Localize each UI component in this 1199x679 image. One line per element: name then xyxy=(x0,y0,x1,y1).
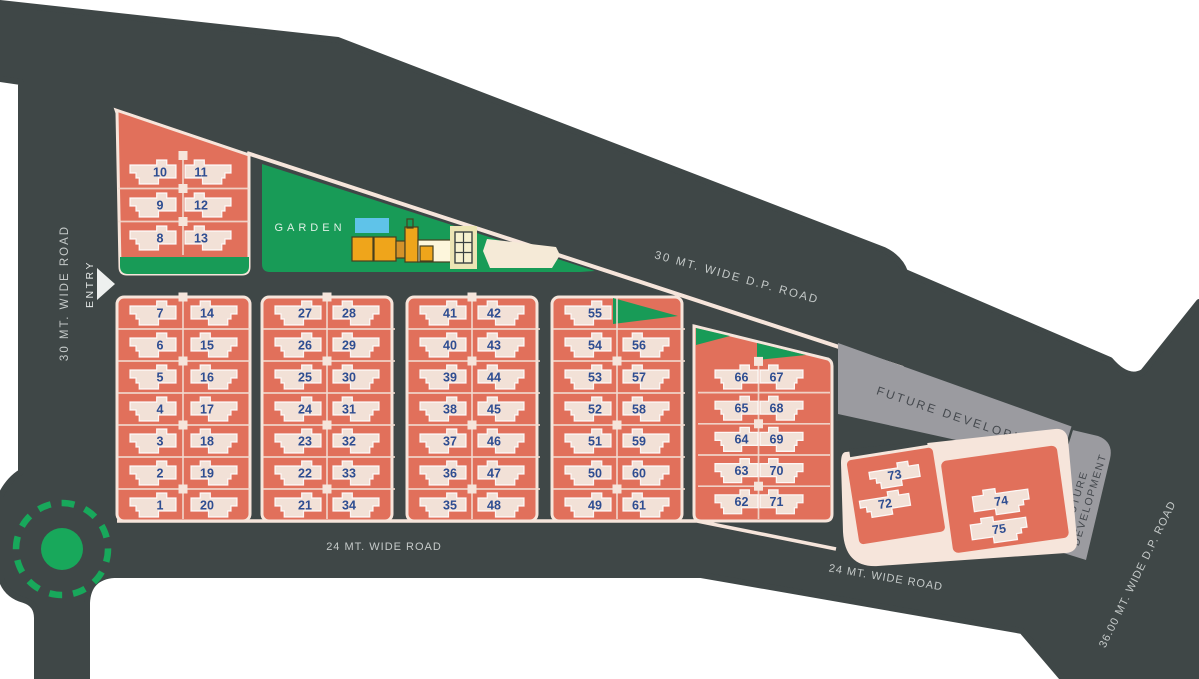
plot-number-28: 28 xyxy=(342,306,356,320)
plot-number-50: 50 xyxy=(588,466,602,480)
plot-number-5: 5 xyxy=(157,370,164,384)
plot-number-18: 18 xyxy=(200,434,214,448)
plot-number-32: 32 xyxy=(342,434,356,448)
plot-number-31: 31 xyxy=(342,402,356,416)
plot-number-40: 40 xyxy=(443,338,457,352)
plot-number-57: 57 xyxy=(632,370,646,384)
plot-number-20: 20 xyxy=(200,498,214,512)
divider-marker xyxy=(179,357,188,366)
plot-number-8: 8 xyxy=(157,231,164,245)
plot-number-43: 43 xyxy=(487,338,501,352)
divider-marker xyxy=(613,485,622,494)
plot-number-12: 12 xyxy=(194,198,208,212)
plot-number-55: 55 xyxy=(588,306,602,320)
plot-number-58: 58 xyxy=(632,402,646,416)
divider-marker xyxy=(754,419,763,428)
plot-number-64: 64 xyxy=(735,433,749,447)
plot-number-19: 19 xyxy=(200,466,214,480)
plot-number-3: 3 xyxy=(157,434,164,448)
divider-marker xyxy=(468,293,477,302)
plot-number-54: 54 xyxy=(588,338,602,352)
plot-number-7: 7 xyxy=(157,306,164,320)
plot-number-71: 71 xyxy=(770,495,784,509)
plot-number-73: 73 xyxy=(887,467,903,483)
site-plan: FUTURE DEVELOPMENT FUTURE DEVELOPMENT GA… xyxy=(0,0,1199,679)
plot-number-39: 39 xyxy=(443,370,457,384)
plot-number-22: 22 xyxy=(298,466,312,480)
road-label-bottom: 24 MT. WIDE ROAD xyxy=(326,541,442,553)
plot-number-56: 56 xyxy=(632,338,646,352)
plot-number-30: 30 xyxy=(342,370,356,384)
plot-number-13: 13 xyxy=(194,231,208,245)
plot-number-21: 21 xyxy=(298,498,312,512)
plot-number-34: 34 xyxy=(342,498,356,512)
plot-number-74: 74 xyxy=(993,493,1009,509)
plot-number-75: 75 xyxy=(991,521,1007,537)
plot-number-69: 69 xyxy=(770,433,784,447)
plot-number-27: 27 xyxy=(298,306,312,320)
plot-number-51: 51 xyxy=(588,434,602,448)
divider-marker xyxy=(323,293,332,302)
divider-marker xyxy=(468,357,477,366)
divider-marker xyxy=(323,357,332,366)
plot-number-47: 47 xyxy=(487,466,501,480)
divider-marker xyxy=(468,421,477,430)
plot-number-67: 67 xyxy=(770,370,784,384)
plot-number-66: 66 xyxy=(735,370,749,384)
divider-marker xyxy=(179,184,188,193)
plot-number-45: 45 xyxy=(487,402,501,416)
plot-number-16: 16 xyxy=(200,370,214,384)
plot-number-4: 4 xyxy=(157,402,164,416)
block-g-group: 7372 xyxy=(845,445,948,546)
plot-number-46: 46 xyxy=(487,434,501,448)
plot-number-60: 60 xyxy=(632,466,646,480)
plot-number-44: 44 xyxy=(487,370,501,384)
plot-number-41: 41 xyxy=(443,306,457,320)
plot-number-37: 37 xyxy=(443,434,457,448)
garden-label: GARDEN xyxy=(274,222,345,234)
plot-number-33: 33 xyxy=(342,466,356,480)
block-a-green-strip xyxy=(120,257,249,274)
divider-marker xyxy=(179,421,188,430)
roundabout-center xyxy=(41,528,83,570)
plot-number-14: 14 xyxy=(200,306,214,320)
plot-number-36: 36 xyxy=(443,466,457,480)
divider-marker xyxy=(613,421,622,430)
plot-number-35: 35 xyxy=(443,498,457,512)
plot-number-9: 9 xyxy=(157,198,164,212)
divider-marker xyxy=(179,151,188,160)
plot-number-61: 61 xyxy=(632,498,646,512)
plot-number-29: 29 xyxy=(342,338,356,352)
plot-number-53: 53 xyxy=(588,370,602,384)
divider-marker xyxy=(754,357,763,366)
plot-number-49: 49 xyxy=(588,498,602,512)
plot-number-38: 38 xyxy=(443,402,457,416)
plot-number-63: 63 xyxy=(735,464,749,478)
divider-marker xyxy=(613,357,622,366)
plot-number-68: 68 xyxy=(770,402,784,416)
road-label-left: 30 MT. WIDE ROAD xyxy=(59,225,71,361)
divider-marker xyxy=(323,421,332,430)
plot-number-11: 11 xyxy=(194,165,207,179)
divider-marker xyxy=(179,485,188,494)
divider-marker xyxy=(179,293,188,302)
plot-number-70: 70 xyxy=(770,464,784,478)
sports-court xyxy=(450,226,477,269)
plot-number-52: 52 xyxy=(588,402,602,416)
divider-marker xyxy=(179,217,188,226)
divider-marker xyxy=(323,485,332,494)
plot-number-72: 72 xyxy=(877,496,893,512)
plot-number-15: 15 xyxy=(200,338,214,352)
swimming-pool xyxy=(355,218,389,233)
block-h-group: 7475 xyxy=(939,443,1071,555)
plot-number-1: 1 xyxy=(157,498,164,512)
plot-number-62: 62 xyxy=(735,495,749,509)
plot-number-6: 6 xyxy=(157,338,164,352)
block-a-plots: 1011912813 xyxy=(118,151,249,255)
plot-number-25: 25 xyxy=(298,370,312,384)
plot-number-59: 59 xyxy=(632,434,646,448)
plot-number-65: 65 xyxy=(735,402,749,416)
entry-label: ENTRY xyxy=(84,260,96,308)
plot-number-26: 26 xyxy=(298,338,312,352)
plot-number-17: 17 xyxy=(200,402,214,416)
plot-number-48: 48 xyxy=(487,498,501,512)
divider-marker xyxy=(754,482,763,491)
plot-number-2: 2 xyxy=(157,466,164,480)
plot-number-23: 23 xyxy=(298,434,312,448)
plot-number-24: 24 xyxy=(298,402,312,416)
plot-number-10: 10 xyxy=(153,165,167,179)
plot-number-42: 42 xyxy=(487,306,501,320)
divider-marker xyxy=(468,485,477,494)
